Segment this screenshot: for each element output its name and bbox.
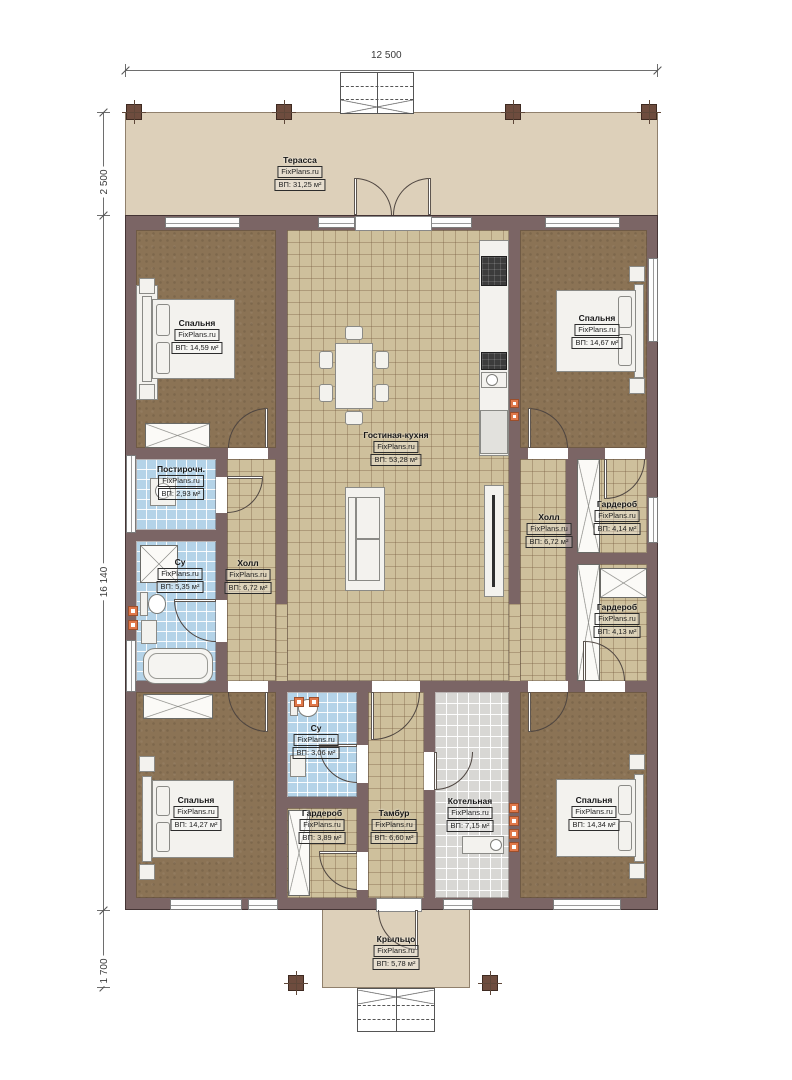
dimension-line-top: [125, 70, 658, 71]
room-label-bathroom-left: Су FixPlans.ru ВП: 5,35 м²: [157, 557, 204, 593]
wardrobe-unit: [145, 423, 210, 448]
door-opening: [528, 681, 568, 692]
watermark: FixPlans.ru: [173, 806, 219, 818]
room-area: ВП: 6,72 м²: [526, 536, 573, 548]
nightstand: [139, 864, 155, 880]
terrace-door-opening: [355, 216, 432, 231]
column: [505, 104, 521, 120]
pillow: [618, 785, 632, 815]
watermark: FixPlans.ru: [277, 166, 323, 178]
door-opening: [357, 852, 368, 890]
door-leaf: [428, 178, 431, 215]
chair: [345, 326, 363, 340]
room-label-bedroom-top-left: Спальня FixPlans.ru ВП: 14,59 м²: [171, 318, 222, 354]
radiator: [309, 697, 319, 707]
watermark: FixPlans.ru: [526, 523, 572, 535]
nightstand: [629, 863, 645, 879]
column: [126, 104, 142, 120]
step-axis: [377, 73, 378, 113]
door-opening: [228, 681, 268, 692]
door-leaf: [434, 752, 437, 790]
column: [276, 104, 292, 120]
sofa-seat: [356, 497, 380, 539]
radiator: [510, 399, 519, 408]
dining-table: [335, 343, 373, 409]
room-area: ВП: 14,59 м²: [171, 342, 222, 354]
pillow: [156, 342, 170, 374]
room-label-bedroom-bottom-left: Спальня FixPlans.ru ВП: 14,27 м²: [170, 795, 221, 831]
stove: [481, 256, 507, 286]
column: [288, 975, 304, 991]
room-area: ВП: 6,72 м²: [225, 582, 272, 594]
steps-top: [340, 72, 414, 114]
door-opening: [216, 600, 227, 642]
floor-plan: 12 500 2 500 16 140 1 700: [0, 0, 792, 1080]
nightstand: [629, 378, 645, 394]
room-label-laundry: Постирочн. FixPlans.ru ВП: 2,93 м²: [157, 464, 205, 500]
window: [165, 217, 240, 228]
toilet-bowl: [148, 594, 166, 614]
watermark: FixPlans.ru: [594, 510, 640, 522]
bed-headboard: [142, 776, 152, 862]
door-opening: [585, 681, 625, 692]
radiator: [294, 697, 304, 707]
watermark: FixPlans.ru: [447, 807, 493, 819]
room-name: Гостиная-кухня: [363, 430, 428, 440]
chair: [375, 384, 389, 402]
watermark: FixPlans.ru: [574, 324, 620, 336]
wardrobe-unit: [600, 568, 647, 598]
room-label-living-kitchen: Гостиная-кухня FixPlans.ru ВП: 53,28 м²: [363, 430, 428, 466]
nightstand: [139, 756, 155, 772]
door-leaf: [319, 851, 357, 854]
watermark: FixPlans.ru: [299, 819, 345, 831]
radiator: [509, 842, 519, 852]
door-opening: [528, 448, 568, 459]
door-leaf: [354, 178, 357, 215]
toilet-tank: [140, 592, 148, 616]
room-area: ВП: 3,89 м²: [299, 832, 346, 844]
chair: [319, 351, 333, 369]
radiator: [509, 816, 519, 826]
window: [126, 455, 136, 533]
room-name: Спальня: [579, 313, 616, 323]
column: [482, 975, 498, 991]
door-opening: [357, 745, 368, 783]
door-opening: [372, 681, 420, 692]
room-floor-boiler: [435, 692, 509, 898]
watermark: FixPlans.ru: [571, 806, 617, 818]
door-leaf: [174, 599, 216, 602]
door-leaf: [265, 692, 268, 732]
radiator: [509, 829, 519, 839]
window: [648, 258, 658, 342]
room-area: ВП: 6,60 м²: [371, 832, 418, 844]
pillow: [618, 821, 632, 851]
watermark: FixPlans.ru: [373, 945, 419, 957]
room-name: Холл: [237, 558, 258, 568]
watermark: FixPlans.ru: [594, 613, 640, 625]
room-label-hall-left: Холл FixPlans.ru ВП: 6,72 м²: [225, 558, 272, 594]
chair: [345, 411, 363, 425]
boiler-dial: [490, 839, 502, 851]
room-name: Котельная: [448, 796, 493, 806]
room-label-wardrobe-bottom: Гардероб FixPlans.ru ВП: 3,89 м²: [299, 808, 346, 844]
room-label-wardrobe-right-bottom: Гардероб FixPlans.ru ВП: 4,13 м²: [594, 602, 641, 638]
sofa-back: [348, 497, 356, 581]
room-area: ВП: 53,28 м²: [370, 454, 421, 466]
door-leaf: [604, 459, 607, 499]
room-name: Су: [175, 557, 186, 567]
room-label-bedroom-bottom-right: Спальня FixPlans.ru ВП: 14,34 м²: [568, 795, 619, 831]
pillow: [156, 822, 170, 852]
chair: [319, 384, 333, 402]
fridge: [480, 410, 508, 454]
window: [126, 640, 136, 692]
room-name: Гардероб: [597, 499, 637, 509]
wardrobe-unit: [143, 694, 213, 719]
room-name: Спальня: [576, 795, 613, 805]
sink-basin: [486, 374, 498, 386]
step-axis: [396, 989, 397, 1031]
nightstand: [139, 384, 155, 400]
room-label-porch: Крыльцо FixPlans.ru ВП: 5,78 м²: [373, 934, 420, 970]
room-area: ВП: 7,15 м²: [447, 820, 494, 832]
door-leaf: [528, 692, 531, 732]
room-name: Гардероб: [302, 808, 342, 818]
door-leaf: [371, 692, 374, 740]
door-leaf: [528, 408, 531, 448]
room-area: ВП: 14,27 м²: [170, 819, 221, 831]
room-name: Крыльцо: [377, 934, 416, 944]
window: [545, 217, 620, 228]
room-label-vestibule: Тамбур FixPlans.ru ВП: 6,60 м²: [371, 808, 418, 844]
room-name: Тамбур: [379, 808, 410, 818]
door-leaf: [583, 641, 586, 681]
dimension-line-left: [103, 112, 104, 988]
radiator: [509, 803, 519, 813]
room-label-bathroom-bottom: Су FixPlans.ru ВП: 3,06 м²: [293, 723, 340, 759]
bathtub: [143, 648, 213, 684]
radiator: [128, 620, 138, 630]
room-floor-hall-right: [520, 459, 566, 681]
watermark: FixPlans.ru: [225, 569, 271, 581]
window: [430, 217, 472, 228]
room-name: Терасса: [283, 155, 317, 165]
column: [641, 104, 657, 120]
door-opening: [216, 477, 227, 513]
watermark: FixPlans.ru: [158, 475, 204, 487]
watermark: FixPlans.ru: [371, 819, 417, 831]
room-name: Холл: [538, 512, 559, 522]
room-area: ВП: 2,93 м²: [158, 488, 205, 500]
watermark: FixPlans.ru: [174, 329, 220, 341]
dimension-terrace-depth: 2 500: [99, 166, 110, 197]
terrace-slab: [125, 112, 658, 216]
nightstand: [629, 754, 645, 770]
watermark: FixPlans.ru: [373, 441, 419, 453]
room-label-wardrobe-right-top: Гардероб FixPlans.ru ВП: 4,14 м²: [594, 499, 641, 535]
nightstand: [139, 278, 155, 294]
room-area: ВП: 3,06 м²: [293, 747, 340, 759]
watermark: FixPlans.ru: [157, 568, 203, 580]
bath-sink: [141, 620, 157, 644]
window: [170, 899, 242, 910]
room-label-boiler: Котельная FixPlans.ru ВП: 7,15 м²: [447, 796, 494, 832]
dimension-house-depth: 16 140: [99, 564, 110, 601]
room-name: Спальня: [178, 795, 215, 805]
window: [648, 497, 658, 543]
room-name: Спальня: [179, 318, 216, 328]
pillow: [156, 786, 170, 816]
door-leaf: [227, 476, 263, 479]
passage-hall-left: [276, 604, 287, 681]
room-area: ВП: 4,13 м²: [594, 626, 641, 638]
window: [443, 899, 473, 910]
radiator: [510, 412, 519, 421]
pillow: [156, 304, 170, 336]
dimension-porch-depth: 1 700: [99, 955, 110, 986]
room-label-hall-right: Холл FixPlans.ru ВП: 6,72 м²: [526, 512, 573, 548]
nightstand: [629, 266, 645, 282]
chair: [375, 351, 389, 369]
room-area: ВП: 14,67 м²: [571, 337, 622, 349]
passage-hall-right: [509, 604, 520, 681]
oven: [481, 352, 507, 370]
room-area: ВП: 31,25 м²: [274, 179, 325, 191]
tv: [492, 495, 495, 587]
window: [553, 899, 621, 910]
room-name: Су: [311, 723, 322, 733]
bed-headboard: [142, 296, 152, 382]
dimension-top-width: 12 500: [368, 50, 405, 61]
room-name: Постирочн.: [157, 464, 205, 474]
room-name: Гардероб: [597, 602, 637, 612]
watermark: FixPlans.ru: [293, 734, 339, 746]
steps-bottom: [357, 988, 435, 1032]
room-area: ВП: 5,35 м²: [157, 581, 204, 593]
room-area: ВП: 4,14 м²: [594, 523, 641, 535]
sofa-seat: [356, 539, 380, 581]
room-area: ВП: 5,78 м²: [373, 958, 420, 970]
room-label-bedroom-top-right: Спальня FixPlans.ru ВП: 14,67 м²: [571, 313, 622, 349]
window: [318, 217, 355, 228]
window: [248, 899, 278, 910]
door-opening: [605, 448, 645, 459]
room-area: ВП: 14,34 м²: [568, 819, 619, 831]
room-label-terrace: Терасса FixPlans.ru ВП: 31,25 м²: [274, 155, 325, 191]
door-leaf: [265, 408, 268, 448]
door-opening: [228, 448, 268, 459]
radiator: [128, 606, 138, 616]
